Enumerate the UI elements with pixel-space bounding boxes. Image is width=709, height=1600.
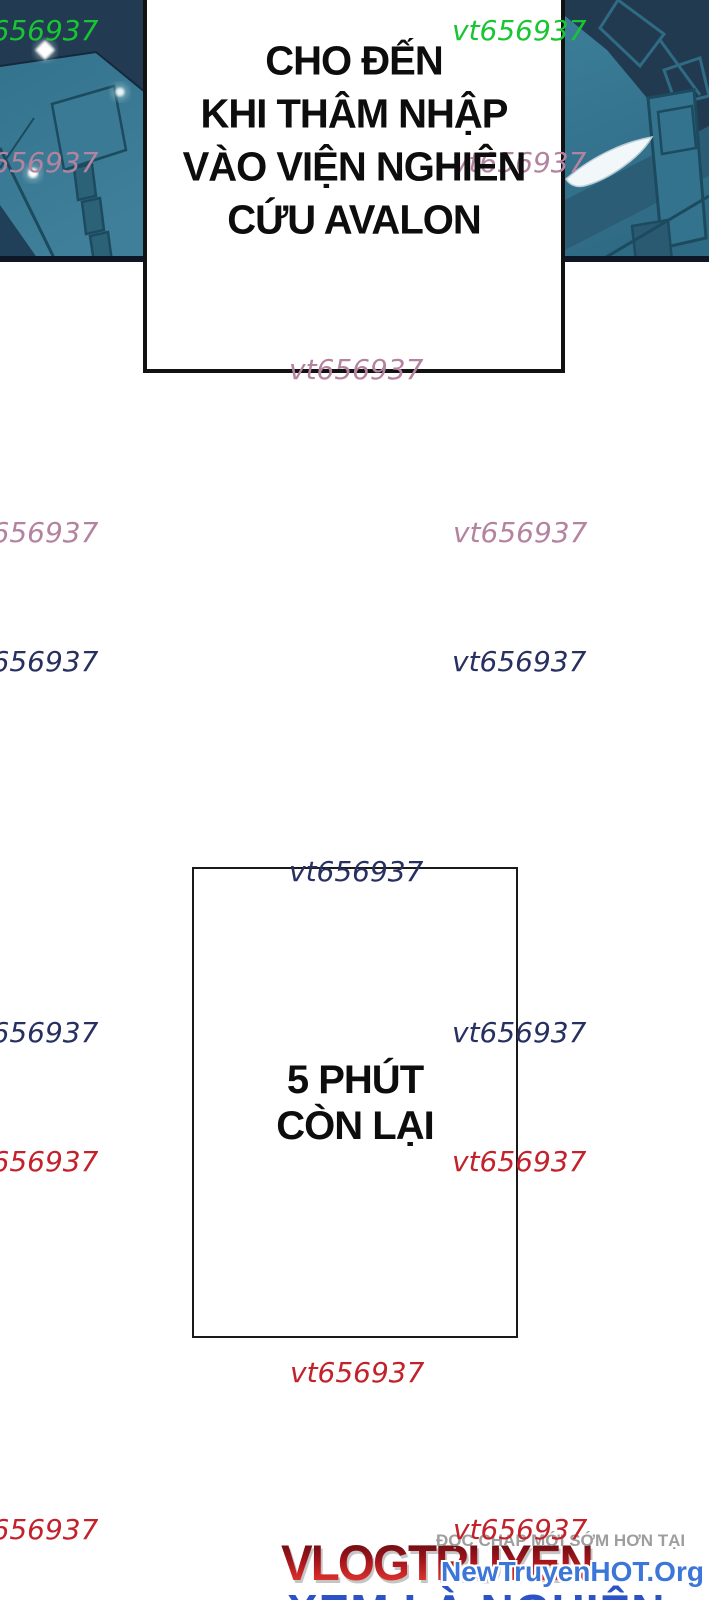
left-art [0,0,145,262]
timer-line-1: 5 PHÚT [194,1057,516,1103]
comic-page: 5 PHÚT CÒN LẠI VLOGTRUYEN XEM LÀ NGHIỆN … [0,0,709,1600]
timer-panel: 5 PHÚT CÒN LẠI [192,867,518,1338]
watermark-red: vt656937 [0,1512,98,1548]
watermark-red: vt656937 [290,1355,424,1391]
watermark-navy: vt656937 [0,1015,98,1051]
watermark-red: vt656937 [0,1144,98,1180]
speech-bubble-text: CHO ĐẾN KHI THÂM NHẬP VÀO VIỆN NGHIÊN CỨ… [143,0,565,247]
watermark-pink: vt656937 [0,515,98,551]
watermark-navy: vt656937 [0,644,98,680]
bubble-line-2: KHI THÂM NHẬP [143,88,565,141]
bubble-line-1: CHO ĐẾN [143,35,565,88]
right-art [565,0,709,262]
watermark-pink: vt656937 [453,515,587,551]
bubble-line-4: CỨU AVALON [143,194,565,247]
site-slogan: XEM LÀ NGHIỆN [287,1587,665,1600]
bubble-line-3: VÀO VIỆN NGHIÊN [143,141,565,194]
watermark-navy: vt656937 [452,644,586,680]
site-tagline: ĐỌC CHAP MỚI SỚM HƠN TẠI [436,1531,686,1551]
timer-text: 5 PHÚT CÒN LẠI [194,1057,516,1149]
site-url: NewTruyenHOT.Org [441,1557,704,1587]
timer-line-2: CÒN LẠI [194,1103,516,1149]
